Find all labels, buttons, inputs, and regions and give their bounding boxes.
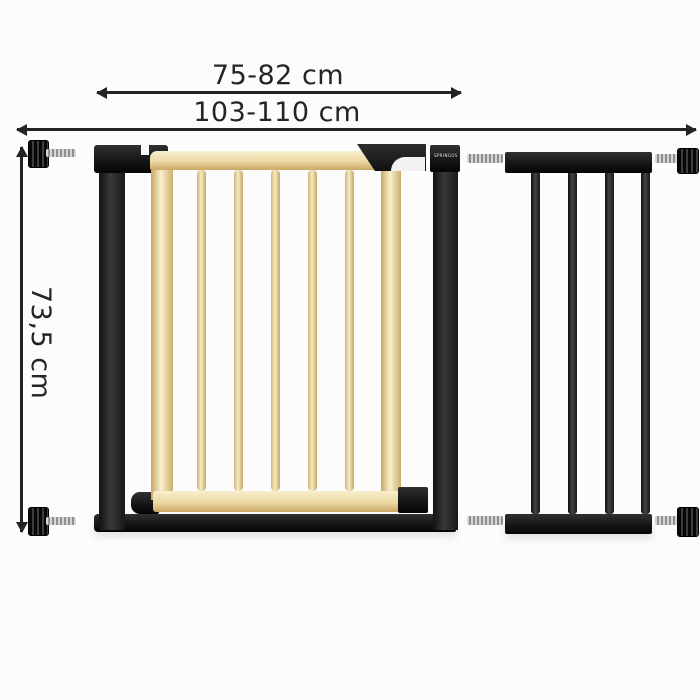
ext-bar [531,171,540,514]
ext-bar [605,171,614,514]
total-width-label: 103-110 cm [172,97,382,128]
threaded-rod-bottom-middle [467,516,503,525]
wood-bar [197,170,206,491]
wall-knob-bottom-right [677,507,699,537]
door-bottom-rail [153,491,404,512]
brand-logo: SPRINGOS [434,151,457,161]
height-label: 73,5 cm [25,283,56,403]
threaded-rod-bottom-right [655,516,678,525]
door-width-arrow [97,91,461,94]
wood-bar [308,170,317,491]
ext-bar [641,171,650,514]
threaded-rod-top-middle [467,154,503,163]
wall-knob-top-right [677,148,699,174]
threaded-rod-top-right [655,154,678,163]
extension-bottom-rail [505,514,652,534]
height-arrow [20,147,23,532]
hinge-notch [141,145,149,155]
latch-catch-bottom [398,487,428,513]
ext-bar [568,171,577,514]
gate-right-post [433,148,458,530]
extension-top-rail [505,152,652,173]
threaded-rod-top-left [46,149,76,157]
product-image: 75-82 cm 103-110 cm 73,5 cm SPRINGOS [0,0,700,700]
wood-bar [271,170,280,491]
wood-bar [345,170,354,491]
door-width-label: 75-82 cm [178,60,378,91]
threaded-rod-bottom-left [46,517,76,525]
wood-bar [234,170,243,491]
total-width-arrow [17,128,696,131]
door-right-stile [381,162,401,500]
gate-left-post [99,149,125,530]
gate-bottom-rail-metal [94,514,456,532]
door-left-stile [151,162,173,500]
latch-release-button [391,157,425,171]
